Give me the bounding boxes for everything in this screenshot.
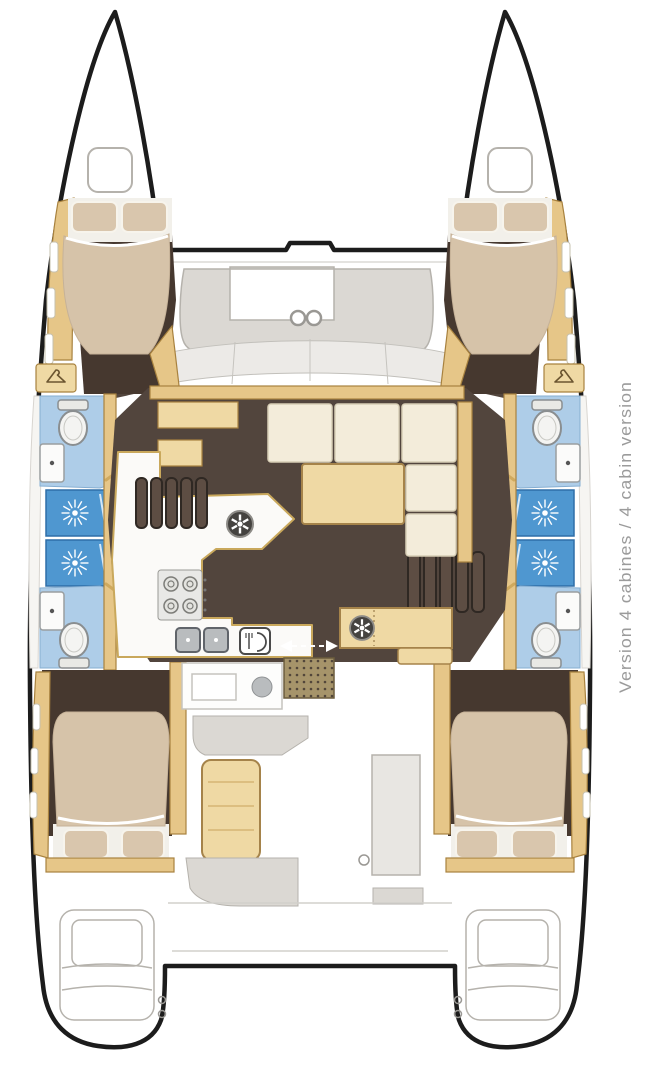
deck-hatch-icon [488, 148, 532, 192]
door-grate [284, 658, 334, 698]
catamaran-floorplan: Version 4 cabines / 4 cabin version [0, 0, 652, 1080]
deck-hatch-icon [88, 148, 132, 192]
sofa-cushion [406, 465, 456, 511]
stairs-starboard-hull [408, 552, 484, 612]
sofa-side-cabinet [458, 402, 472, 562]
nav-seat [398, 648, 452, 664]
fan-hatch-icon [350, 616, 374, 640]
fan-hatch-icon [227, 511, 253, 537]
sofa-cushion [402, 404, 456, 462]
deck-hatch-icon [307, 311, 321, 325]
fridge-cutlery-icon [240, 628, 270, 654]
stairs-port-hull [136, 478, 207, 528]
stove-burners-icon [158, 570, 207, 620]
sofa-cushion [268, 404, 332, 462]
cockpit-wood-bench [202, 760, 260, 860]
cockpit-wet-bar [182, 663, 282, 709]
sofa-cushion [335, 404, 399, 462]
salon [108, 386, 512, 698]
sofa-cushion [406, 514, 456, 556]
cockpit-bench [193, 716, 308, 755]
deck-fitting [359, 855, 369, 865]
galley-cabinet [158, 440, 202, 466]
salon-table [302, 464, 404, 524]
cockpit-sink [252, 677, 272, 697]
deck-hatch-icon [291, 311, 305, 325]
version-label: Version 4 cabines / 4 cabin version [616, 381, 635, 693]
salon-front-wall [150, 386, 464, 399]
cockpit-console [372, 755, 420, 875]
galley-cabinet [158, 402, 238, 428]
aft-seat [373, 888, 423, 904]
aft-seat [186, 858, 298, 906]
